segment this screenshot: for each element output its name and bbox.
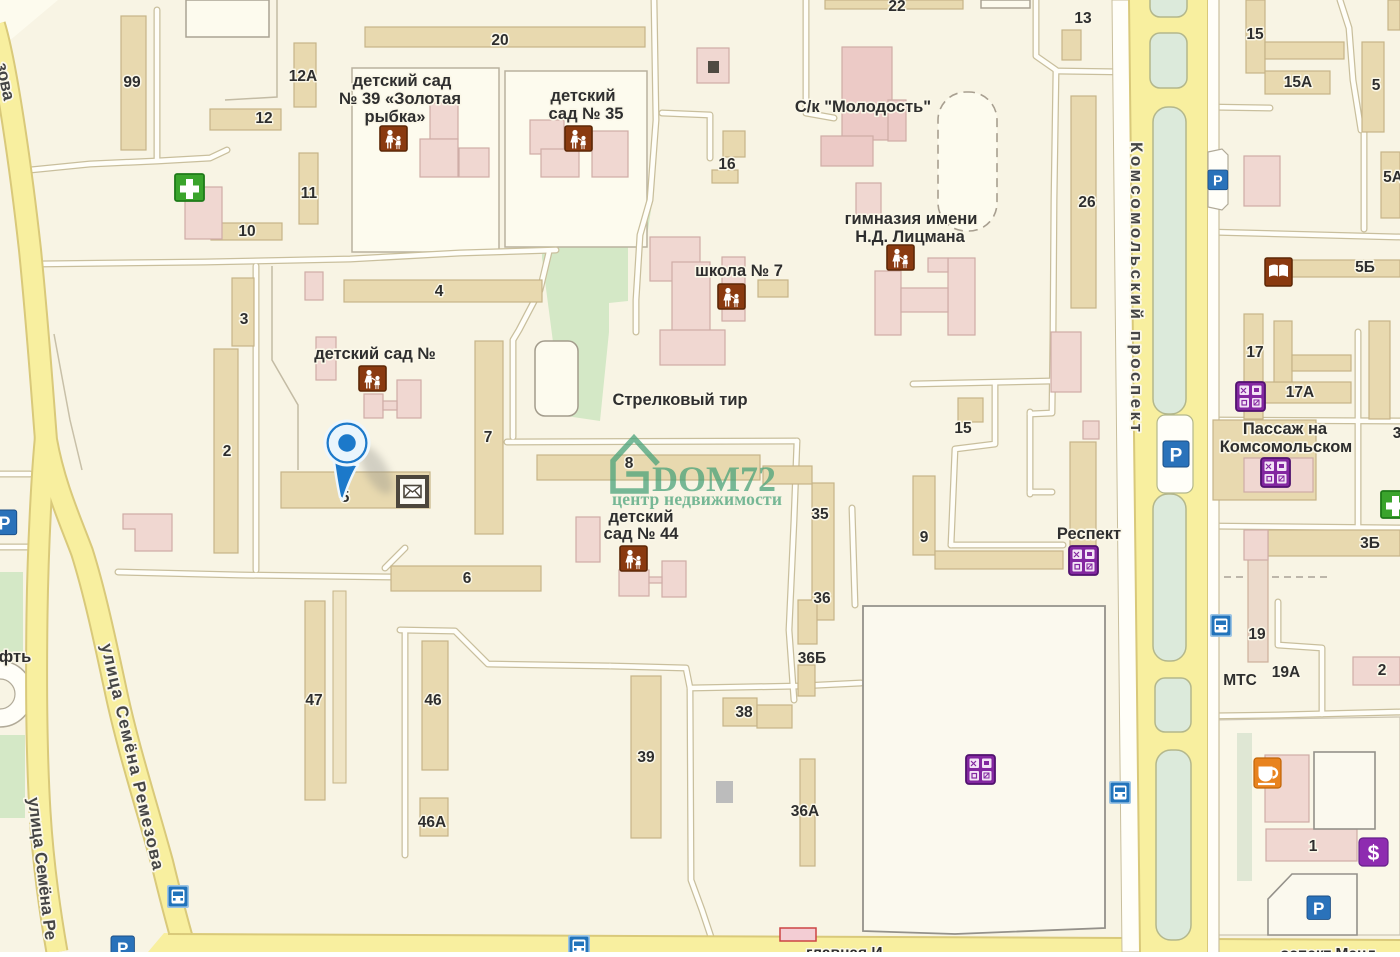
svg-text:сад № 44: сад № 44: [604, 525, 680, 543]
svg-text:7: 7: [484, 429, 493, 446]
svg-text:школа № 7: школа № 7: [695, 262, 783, 280]
svg-text:3: 3: [240, 311, 249, 328]
svg-text:36: 36: [813, 590, 831, 607]
svg-text:3Б: 3Б: [1360, 535, 1380, 552]
svg-text:46: 46: [424, 692, 442, 709]
svg-text:12: 12: [255, 110, 272, 127]
svg-text:17: 17: [1246, 344, 1263, 361]
svg-text:детский: детский: [550, 87, 615, 105]
svg-text:5А: 5А: [1383, 169, 1400, 186]
svg-text:сад № 35: сад № 35: [549, 105, 624, 123]
svg-text:13: 13: [1074, 10, 1092, 27]
svg-text:Комсомольском: Комсомольском: [1220, 438, 1353, 456]
svg-text:2: 2: [1378, 662, 1387, 679]
svg-text:15А: 15А: [1284, 74, 1312, 91]
svg-text:$: $: [1368, 842, 1380, 865]
svg-text:9: 9: [920, 529, 929, 546]
svg-text:детский: детский: [608, 508, 673, 526]
svg-text:26: 26: [1078, 194, 1096, 211]
svg-text:46А: 46А: [418, 814, 446, 831]
svg-text:19А: 19А: [1272, 664, 1300, 681]
svg-text:Респект: Респект: [1057, 525, 1121, 543]
svg-text:11: 11: [301, 185, 318, 202]
svg-text:17А: 17А: [1286, 384, 1314, 401]
svg-text:оспект Менд: оспект Менд: [1280, 946, 1376, 952]
svg-text:8: 8: [625, 455, 634, 472]
svg-text:20: 20: [491, 32, 508, 49]
svg-text:22: 22: [888, 0, 905, 15]
svg-text:99: 99: [123, 74, 141, 91]
svg-text:1: 1: [1309, 838, 1318, 855]
svg-text:2: 2: [223, 443, 232, 460]
svg-text:39: 39: [637, 749, 655, 766]
svg-text:36Б: 36Б: [798, 650, 826, 667]
svg-text:Пассаж на: Пассаж на: [1243, 420, 1328, 438]
svg-text:6: 6: [463, 570, 472, 587]
svg-text:47: 47: [305, 692, 322, 709]
svg-text:19: 19: [1248, 626, 1266, 643]
svg-text:5: 5: [1372, 77, 1381, 94]
svg-text:детский сад №: детский сад №: [314, 345, 436, 363]
svg-text:МТС: МТС: [1223, 672, 1257, 689]
svg-text:12А: 12А: [289, 68, 317, 85]
svg-text:3: 3: [1393, 425, 1400, 442]
svg-text:Комсомольский проспект: Комсомольский проспект: [1127, 142, 1146, 435]
svg-text:36А: 36А: [791, 803, 819, 820]
svg-text:центр недвижимости: центр недвижимости: [612, 489, 782, 509]
svg-text:4: 4: [435, 283, 444, 300]
svg-text:гимназия имени: гимназия имени: [845, 210, 978, 228]
svg-text:рыбка»: рыбка»: [365, 108, 426, 126]
svg-text:Стрелковый тир: Стрелковый тир: [612, 391, 747, 409]
svg-text:№ 39 «Золотая: № 39 «Золотая: [339, 90, 461, 108]
svg-text:16: 16: [718, 156, 736, 173]
svg-text:35: 35: [811, 506, 829, 523]
svg-text:15: 15: [1246, 26, 1264, 43]
svg-text:С/к "Молодость": С/к "Молодость": [795, 98, 931, 116]
svg-text:15: 15: [954, 420, 972, 437]
svg-text:Н.Д. Лицмана: Н.Д. Лицмана: [855, 228, 965, 246]
svg-text:10: 10: [238, 223, 255, 240]
svg-text:5Б: 5Б: [1355, 259, 1375, 276]
svg-text:фть: фть: [0, 648, 31, 666]
svg-text:детский сад: детский сад: [353, 72, 452, 90]
svg-text:38: 38: [735, 704, 753, 721]
svg-text:главная И: главная И: [806, 945, 883, 952]
